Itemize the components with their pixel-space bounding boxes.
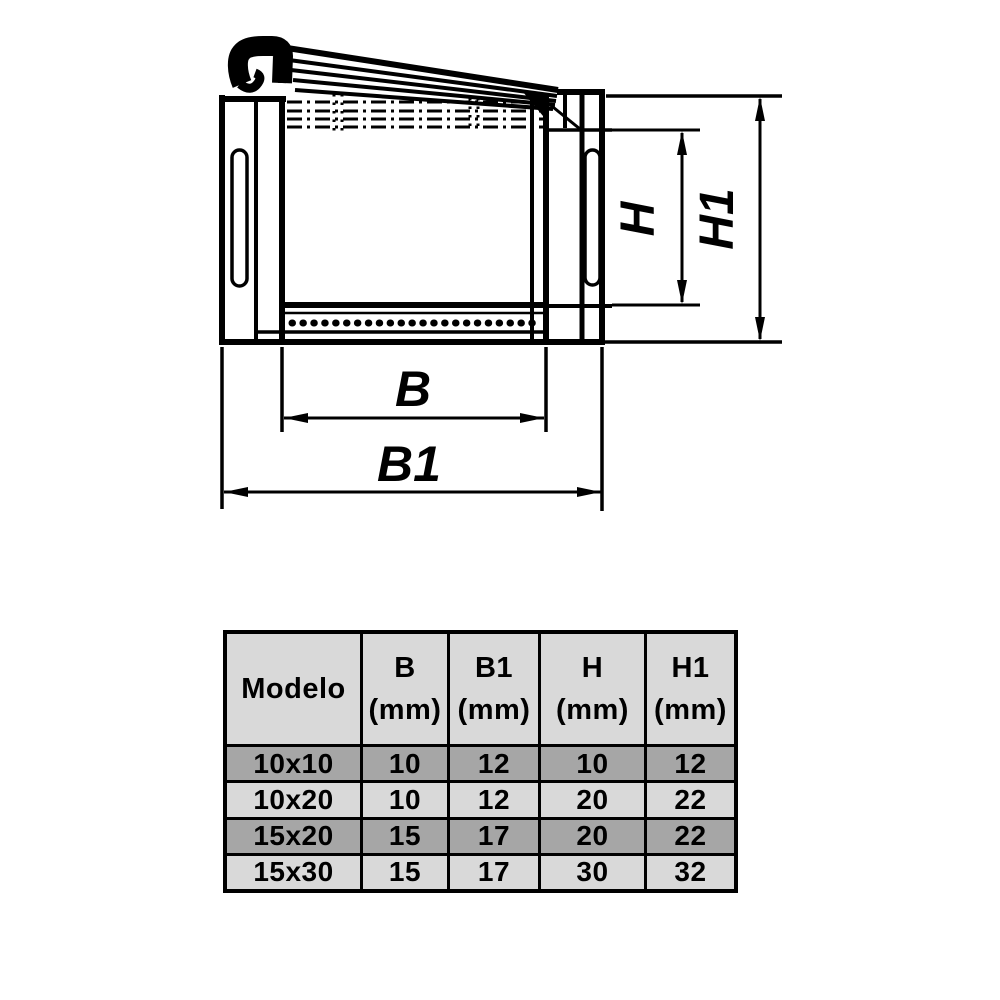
cell-h: 30 [541,856,644,889]
cell-b: 15 [363,820,447,853]
cell-b: 10 [363,783,447,816]
product-dimension-sheet: H H1 B B1 [0,0,1000,1000]
dim-label-h1: H1 [691,188,744,249]
cell-b1: 12 [450,783,538,816]
col-header-h: H (mm) [541,634,644,744]
cell-b: 10 [363,747,447,780]
col-header-b1: B1 (mm) [450,634,538,744]
col-header-modelo: Modelo [227,634,360,744]
left-wall-slot [232,150,247,286]
lid-clip-icon [238,46,283,88]
cell-b1: 17 [450,820,538,853]
technical-drawing-trunking-profile: H H1 B B1 [0,0,1000,560]
cell-h1: 22 [647,820,734,853]
col-header-modelo-label: Modelo [241,668,346,710]
cell-b1: 12 [450,747,538,780]
col-header-b: B (mm) [363,634,447,744]
cell-b: 15 [363,856,447,889]
cell-h1: 32 [647,856,734,889]
cell-h1: 22 [647,783,734,816]
dim-label-h: H [612,200,665,236]
dim-label-b1: B1 [377,436,441,492]
body-perforated-base [219,305,612,342]
cell-h: 10 [541,747,644,780]
body-left-wall [219,95,286,345]
cell-h1: 12 [647,747,734,780]
dim-label-b: B [395,361,431,417]
cell-modelo: 10x10 [227,747,360,780]
dimension-B: B [282,347,546,432]
dimensions-table: Modelo B (mm) B1 (mm) H (mm) H1 (mm) 10x… [223,630,738,893]
right-wall-slot [585,150,600,285]
cell-h: 20 [541,820,644,853]
cell-modelo: 10x20 [227,783,360,816]
dimension-H: H [612,130,700,305]
col-header-h1: H1 (mm) [647,634,734,744]
cell-modelo: 15x30 [227,856,360,889]
cell-modelo: 15x20 [227,820,360,853]
cell-b1: 17 [450,856,538,889]
cell-h: 20 [541,783,644,816]
